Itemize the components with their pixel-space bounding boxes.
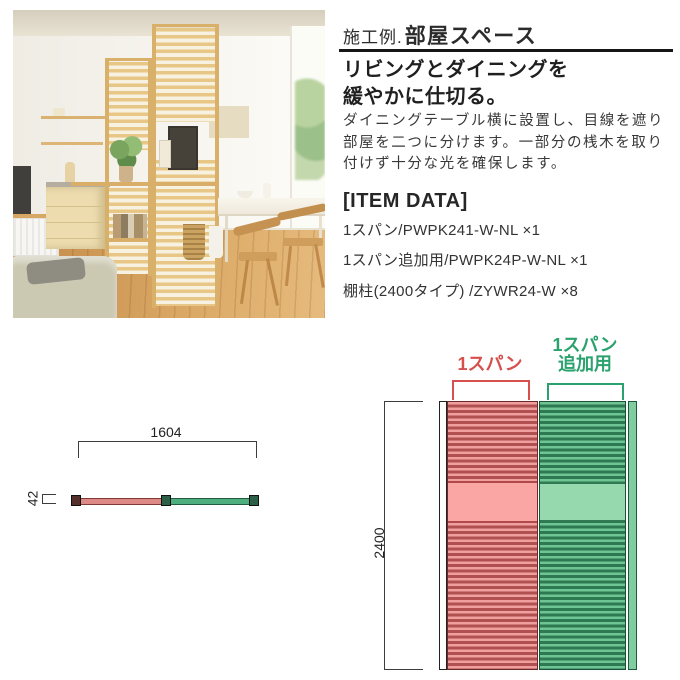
front-view-height-dim: 2400 xyxy=(371,521,385,565)
photo-partition-top-rail xyxy=(105,58,152,61)
photo-books xyxy=(113,214,147,238)
photo-drawer-line xyxy=(46,206,106,207)
span2-label-line2: 追加用 xyxy=(545,355,625,374)
photo-table-leg xyxy=(225,216,228,262)
description-line1: ダイニングテーブル横に設置し、目線を遮り xyxy=(343,111,664,133)
photo-window-plant xyxy=(295,70,325,180)
photo-mid-shelf xyxy=(71,182,219,186)
photo-small-frame xyxy=(159,140,171,168)
description-line3: 付けず十分な光を確保します。 xyxy=(343,154,664,176)
span2-panel xyxy=(539,401,626,670)
photo-hanging-basket xyxy=(183,224,205,260)
photo-partition-top-rail xyxy=(152,24,219,27)
photo-drawer-line xyxy=(46,222,106,223)
photo-drawer-line xyxy=(46,238,106,239)
top-view-depth-dim: 42 xyxy=(25,488,38,510)
photo-shelf-object xyxy=(53,108,65,116)
top-view-width-dim: 1604 xyxy=(136,424,196,440)
photo-partition-slats xyxy=(156,28,215,122)
top-view-post xyxy=(71,495,81,506)
subtitle: リビングとダイニングを 緩やかに仕切る。 xyxy=(343,57,569,111)
span1-panel xyxy=(447,401,538,670)
photo-plant-pot xyxy=(119,166,133,182)
dimension-tick xyxy=(384,669,423,670)
room-photo xyxy=(13,10,325,318)
top-view-post xyxy=(161,495,171,506)
span2-label-line1: 1スパン xyxy=(545,336,625,355)
span1-label: 1スパン xyxy=(452,355,528,374)
item-line-posts: 棚柱(2400タイプ) /ZYWR24-W ×8 xyxy=(343,280,578,301)
photo-book-shelf xyxy=(109,238,151,242)
top-view-span1-bar xyxy=(76,498,168,505)
span2-label: 1スパン 追加用 xyxy=(545,336,625,374)
span1-bracket xyxy=(452,380,530,400)
depth-bracket xyxy=(42,494,56,504)
title-main: 部屋スペース xyxy=(405,20,537,50)
span1-open-section xyxy=(448,481,537,523)
subtitle-line2: 緩やかに仕切る。 xyxy=(343,84,569,111)
top-view-span2-bar xyxy=(166,498,258,505)
title-underline xyxy=(339,49,673,52)
shelf-post-green xyxy=(628,401,637,670)
dimension-tick xyxy=(384,401,423,402)
photo-cutting-board xyxy=(65,162,75,184)
span2-open-section xyxy=(540,482,625,522)
photo-partition-post xyxy=(152,24,156,308)
shelf-post-white xyxy=(439,401,447,670)
photo-kitchen-cabinet xyxy=(46,187,106,249)
product-info-page: 施工例. 部屋スペース リビングとダイニングを 緩やかに仕切る。 ダイニングテー… xyxy=(0,0,680,680)
item-line-span2: 1スパン追加用/PWPK24P-W-NL ×1 xyxy=(343,249,588,270)
dimension-tick xyxy=(78,441,79,458)
photo-partition-post xyxy=(215,24,219,308)
photo-picture-frame xyxy=(168,126,198,170)
dimension-tick xyxy=(256,441,257,458)
photo-table-pitcher xyxy=(263,183,271,198)
page-title: 施工例. 部屋スペース xyxy=(343,20,537,50)
item-data-heading: [ITEM DATA] xyxy=(343,190,468,213)
item-line-span1: 1スパン/PWPK241-W-NL ×1 xyxy=(343,219,540,240)
dimension-line xyxy=(78,441,257,442)
top-view-post xyxy=(249,495,259,506)
photo-hanging-cloth xyxy=(209,226,223,258)
span2-bracket xyxy=(547,383,624,400)
photo-chair-seat xyxy=(239,252,277,261)
photo-shelf-upper xyxy=(41,116,109,119)
photo-tv xyxy=(13,166,31,220)
photo-plant-leaves xyxy=(107,136,143,170)
description-line2: 部屋を二つに分けます。一部分の桟木を取り xyxy=(343,133,664,155)
photo-shelf-lower xyxy=(41,142,103,145)
subtitle-line1: リビングとダイニングを xyxy=(343,57,569,84)
description: ダイニングテーブル横に設置し、目線を遮り 部屋を二つに分けます。一部分の桟木を取… xyxy=(343,111,664,176)
title-prefix: 施工例. xyxy=(343,23,403,48)
